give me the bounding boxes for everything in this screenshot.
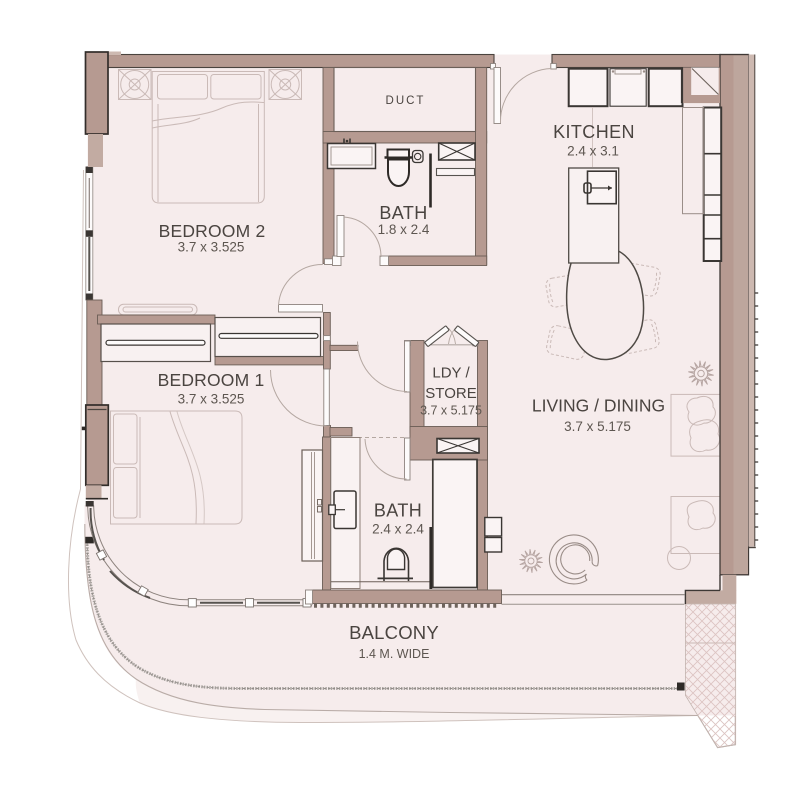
svg-text:2.4 x 2.4: 2.4 x 2.4	[372, 522, 424, 537]
svg-text:BEDROOM 2: BEDROOM 2	[159, 221, 266, 241]
svg-text:3.7 x 5.175: 3.7 x 5.175	[564, 419, 631, 434]
svg-text:BEDROOM 1: BEDROOM 1	[158, 370, 265, 390]
svg-text:1.4 M. WIDE: 1.4 M. WIDE	[359, 647, 430, 661]
svg-text:3.7 x 5.175: 3.7 x 5.175	[420, 404, 482, 418]
svg-text:BATH: BATH	[379, 203, 427, 223]
svg-text:KITCHEN: KITCHEN	[553, 122, 635, 142]
svg-text:STORE: STORE	[425, 385, 476, 402]
svg-text:BALCONY: BALCONY	[349, 622, 439, 643]
svg-text:DUCT: DUCT	[386, 95, 426, 107]
svg-text:3.7 x 3.525: 3.7 x 3.525	[178, 240, 245, 255]
svg-text:3.7 x 3.525: 3.7 x 3.525	[178, 392, 245, 407]
svg-text:1.8 x 2.4: 1.8 x 2.4	[378, 222, 430, 237]
svg-text:LDY /: LDY /	[432, 365, 470, 382]
svg-text:2.4 x 3.1: 2.4 x 3.1	[567, 144, 619, 159]
svg-text:BATH: BATH	[374, 501, 422, 521]
svg-text:LIVING / DINING: LIVING / DINING	[532, 396, 665, 416]
